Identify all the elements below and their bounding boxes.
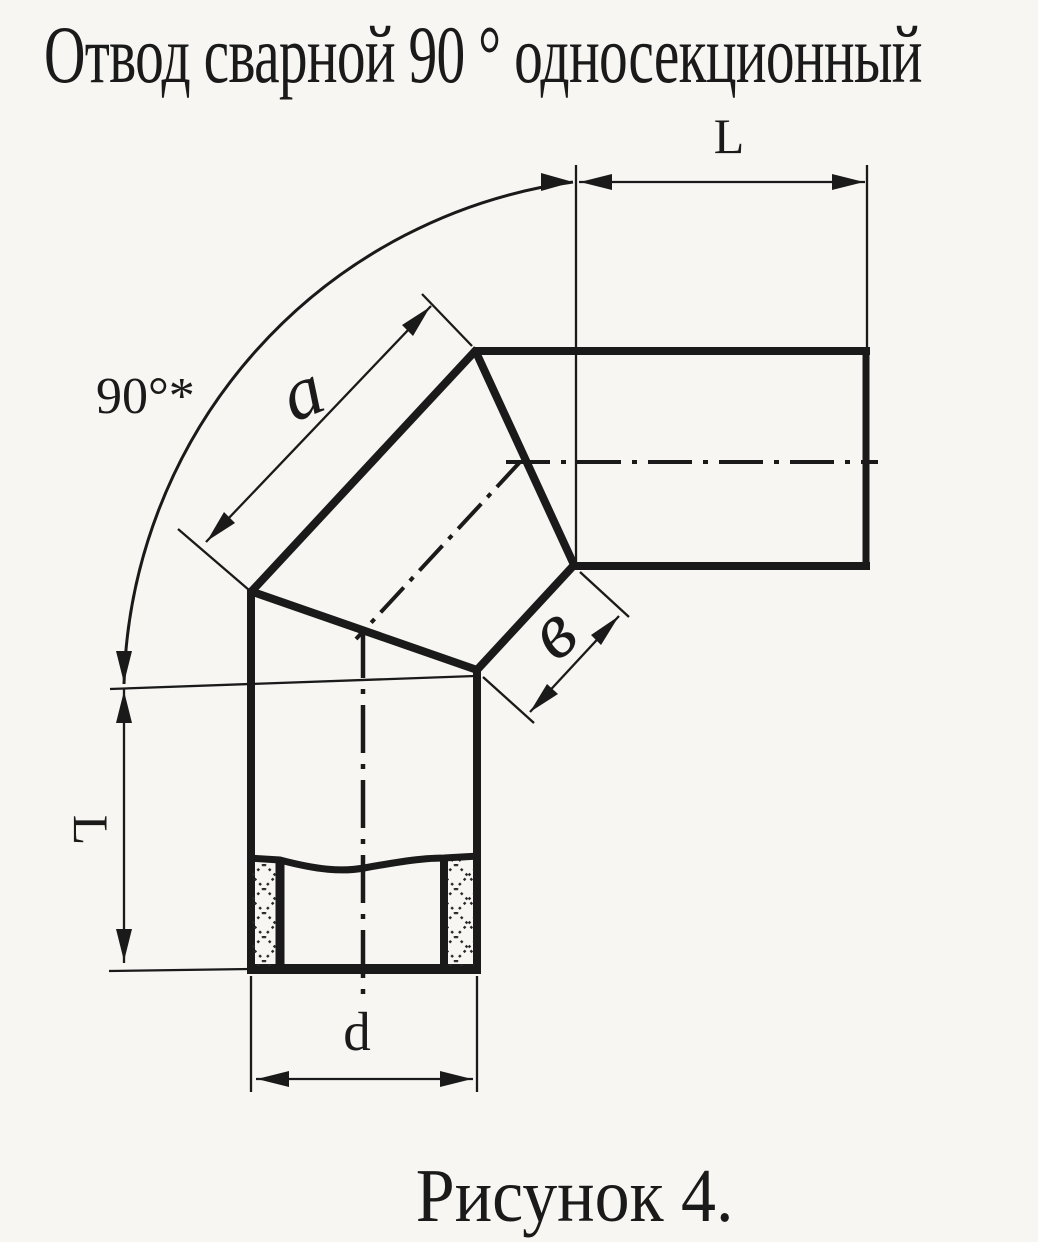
arrow-arc-top xyxy=(541,173,573,191)
scanned-drawing-page: Отвод сварной 90 ° односекционный xyxy=(0,0,1038,1242)
label-diameter-d: d xyxy=(343,1001,371,1062)
arrow-b-lower xyxy=(530,684,558,712)
figure-caption-row: Рисунок 4. xyxy=(56,1158,1038,1234)
ext-line-a-lower xyxy=(178,529,249,590)
ext-line-b-upper xyxy=(580,572,629,617)
label-angle-90: 90°* xyxy=(96,368,195,425)
ext-line-left-l-bottom xyxy=(109,969,250,971)
center-lines xyxy=(356,462,878,997)
arrow-left-l-top xyxy=(116,691,132,723)
gasket-hatch-left xyxy=(252,858,276,966)
elbow-technical-drawing: 90°* L L a в d xyxy=(0,0,1038,1242)
gasket-hatch-right xyxy=(448,856,474,966)
arrow-left-l-bottom xyxy=(116,929,132,961)
section-axis-centerline xyxy=(356,462,520,639)
ext-line-left-l-top xyxy=(110,676,475,689)
ext-line-a-upper xyxy=(422,294,472,346)
arrow-d-right xyxy=(440,1071,472,1087)
label-length-left: L xyxy=(63,815,119,846)
dimension-arrowheads xyxy=(116,173,864,1087)
label-section-outer-a: a xyxy=(269,346,336,438)
dimension-lines xyxy=(109,165,867,1092)
arrow-arc-bottom xyxy=(116,651,132,683)
weld-seam-upper xyxy=(475,350,575,567)
arrow-top-l-left xyxy=(580,174,612,190)
figure-caption: Рисунок 4. xyxy=(416,1158,734,1234)
label-length-top: L xyxy=(714,108,745,164)
arrow-top-l-right xyxy=(832,174,864,190)
ext-line-b-lower xyxy=(483,677,534,723)
angle-dimension-arc xyxy=(124,182,573,684)
label-section-inner-b: в xyxy=(511,587,594,677)
arrow-d-left xyxy=(257,1071,289,1087)
